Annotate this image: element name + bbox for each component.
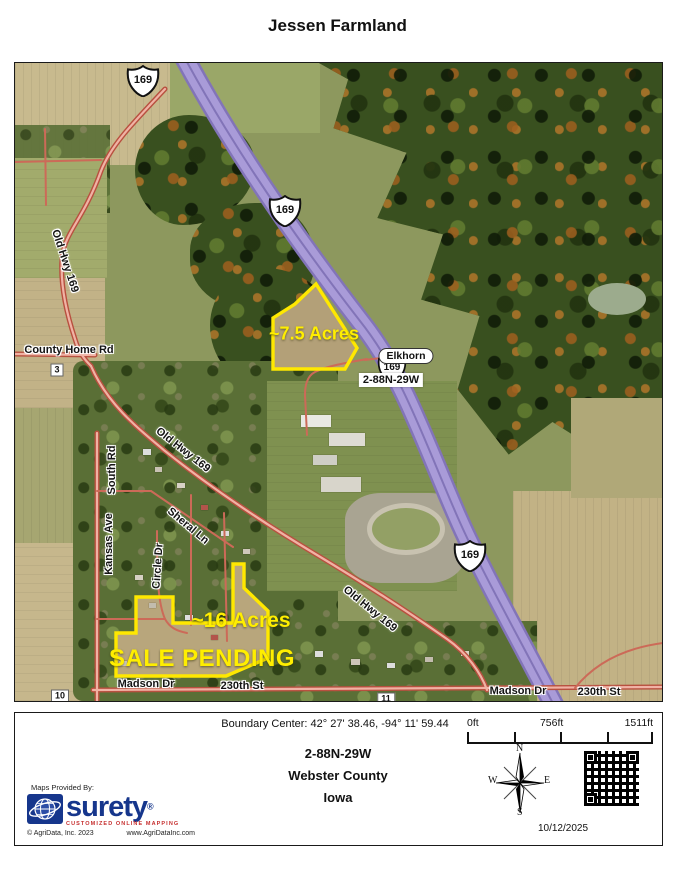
township-label: 2-88N-29W [198, 746, 478, 761]
road-label-south-rd: South Rd [106, 446, 118, 495]
building [135, 575, 143, 580]
road-label-madson-dr: Madson Dr [490, 685, 547, 697]
map-date: 10/12/2025 [515, 823, 611, 834]
location-block: 2-88N-29W Webster County Iowa [198, 746, 478, 812]
page-title: Jessen Farmland [0, 16, 675, 36]
aerial-map: 169 169 169 169 County Home Rd Old Hwy 1… [14, 62, 663, 702]
agridata-copyright: © AgriData, Inc. 2023 [27, 830, 94, 837]
building [143, 449, 151, 455]
map-footer: Boundary Center: 42° 27' 38.46, -94° 11'… [14, 712, 663, 846]
building [315, 651, 323, 657]
parcel2-acres-label: ~16 Acres [191, 609, 290, 633]
state-label: Iowa [198, 790, 478, 805]
parcel1-acres-label: ~7.5 Acres [269, 324, 359, 345]
farm-shed [301, 415, 331, 427]
building [149, 603, 156, 608]
county-label: Webster County [198, 768, 478, 783]
surety-wordmark: surety [66, 791, 147, 823]
surety-tagline: CUSTOMIZED ONLINE MAPPING [66, 821, 179, 827]
building [211, 635, 218, 640]
section-number-10: 10 [51, 690, 69, 703]
building [155, 467, 162, 472]
surety-globe-icon [27, 794, 63, 824]
building [387, 663, 395, 668]
road-label-county-home-rd: County Home Rd [24, 344, 113, 356]
section-number-11: 11 [377, 693, 395, 703]
place-label-elkhorn: Elkhorn [378, 348, 433, 364]
section-number-3: 3 [50, 364, 63, 377]
us-169-shield: 169 [268, 195, 302, 227]
qr-finder [584, 751, 597, 764]
terrain-pond [588, 283, 646, 315]
building [201, 505, 208, 510]
road-label-madson-dr: Madson Dr [118, 678, 175, 690]
registered-mark: ® [147, 802, 154, 812]
qr-finder [626, 751, 639, 764]
page: Jessen Farmland [0, 0, 675, 876]
building [221, 531, 229, 536]
building [243, 549, 250, 554]
compass-needle-icon [488, 743, 552, 819]
road-label-230th-st: 230th St [578, 686, 621, 698]
qr-code [584, 751, 639, 806]
us-169-shield: 169 [453, 540, 487, 572]
provider-block: Maps Provided By: surety® CUSTOMIZED ONL… [27, 783, 207, 837]
sale-pending-label: SALE PENDING [109, 645, 295, 673]
terrain-racetrack [367, 503, 445, 555]
building [177, 483, 185, 488]
terrain-field-e [571, 398, 662, 498]
qr-finder [584, 793, 597, 806]
scale-start: 0ft [467, 717, 479, 729]
compass-rose: N W E S [488, 743, 552, 819]
road-label-kansas-ave: Kansas Ave [103, 513, 115, 575]
scale-bar: 0ft 756ft 1511ft [467, 717, 653, 744]
farm-shed [329, 433, 365, 446]
agridata-website: www.AgriDataInc.com [127, 830, 195, 837]
scale-end: 1511ft [625, 717, 653, 729]
us-169-shield: 169 [126, 65, 160, 97]
road-label-230th-st: 230th St [221, 680, 264, 692]
township-map-label: 2-88N-29W [359, 373, 423, 387]
building [461, 651, 469, 656]
farm-shed [321, 477, 361, 492]
scale-middle: 756ft [540, 717, 563, 729]
building [425, 657, 433, 662]
building [351, 659, 360, 665]
scale-labels: 0ft 756ft 1511ft [467, 717, 653, 729]
farm-shed [313, 455, 337, 465]
